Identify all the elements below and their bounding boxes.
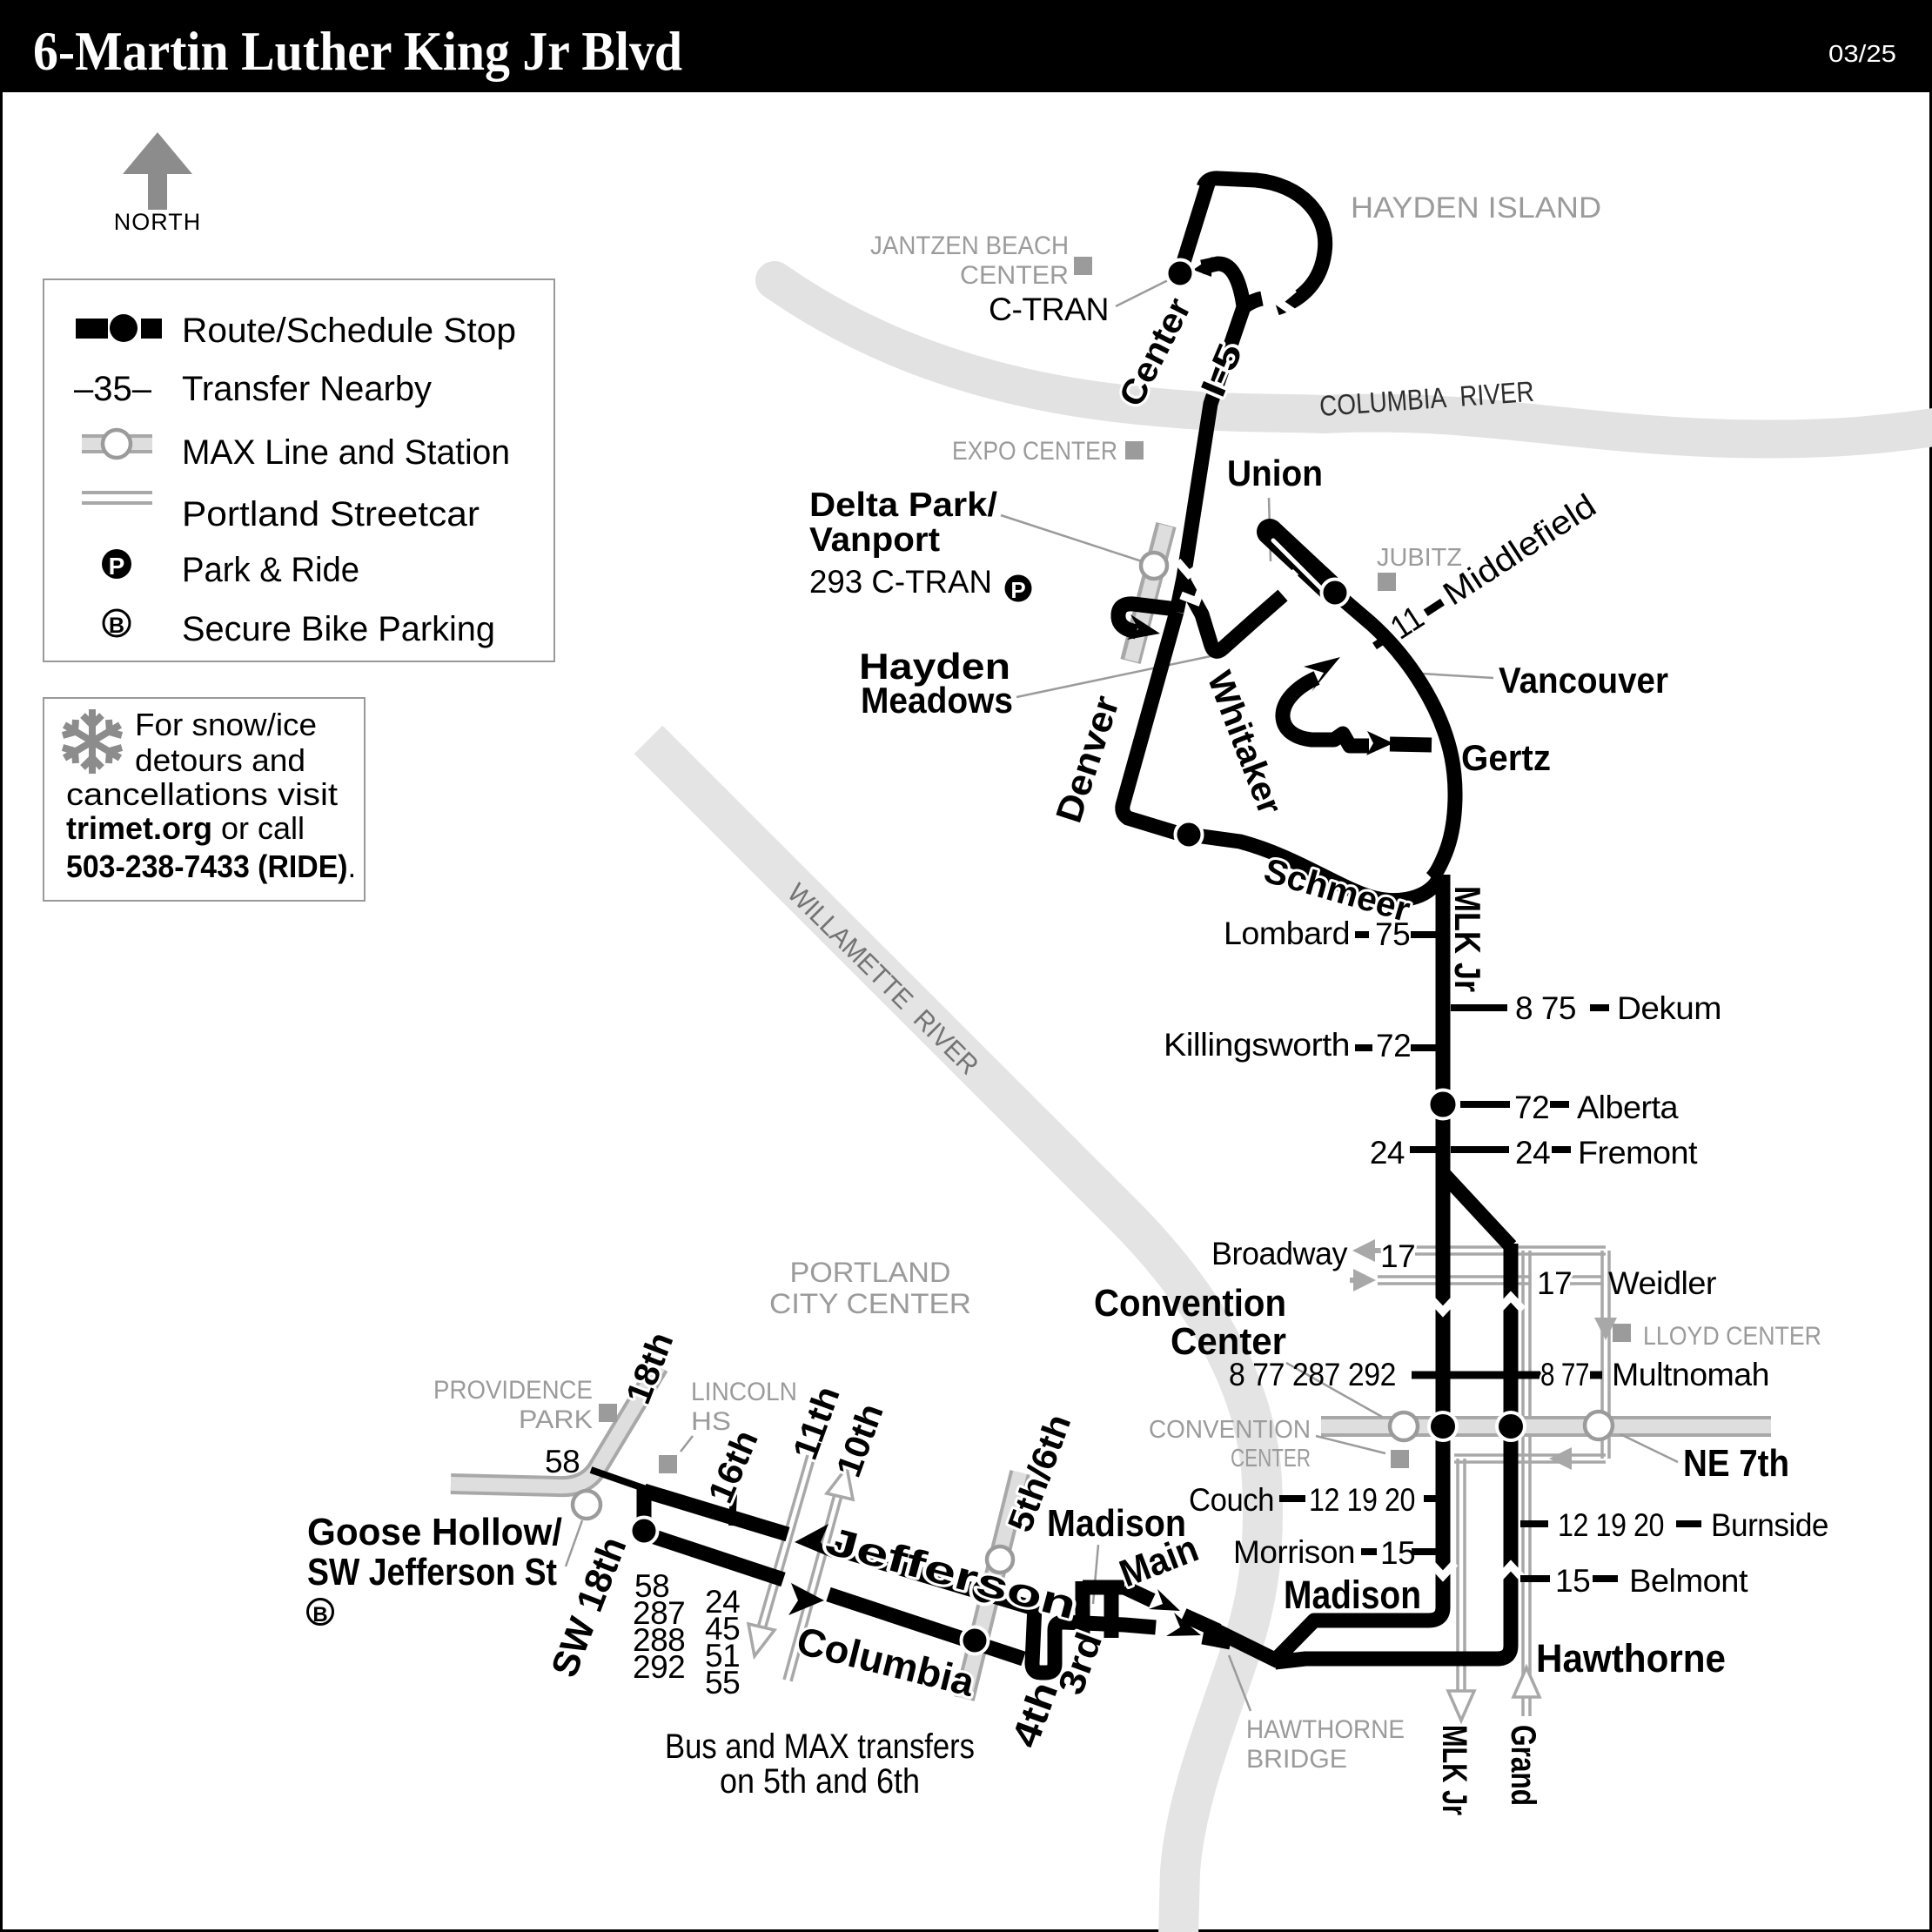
- svg-text:CONVENTION: CONVENTION: [1149, 1416, 1311, 1444]
- svg-text:Grand: Grand: [1504, 1725, 1542, 1806]
- svg-text:For snow/ice: For snow/ice: [135, 707, 317, 742]
- svg-text:B: B: [109, 614, 124, 638]
- svg-text:detours and: detours and: [135, 742, 305, 778]
- svg-text:292: 292: [633, 1649, 685, 1685]
- svg-text:CENTER: CENTER: [960, 261, 1069, 290]
- svg-text:SW Jefferson St: SW Jefferson St: [307, 1551, 557, 1593]
- svg-text:72: 72: [1514, 1090, 1549, 1125]
- svg-text:8 75: 8 75: [1515, 990, 1576, 1026]
- svg-text:Couch: Couch: [1189, 1482, 1274, 1518]
- svg-text:Dekum: Dekum: [1617, 990, 1721, 1026]
- svg-text:72: 72: [1376, 1028, 1411, 1063]
- svg-text:B: B: [312, 1603, 327, 1627]
- svg-text:Meadows: Meadows: [861, 680, 1013, 721]
- svg-text:12 19 20: 12 19 20: [1309, 1482, 1415, 1518]
- svg-text:Route/Schedule Stop: Route/Schedule Stop: [182, 312, 516, 350]
- svg-text:Vanport: Vanport: [809, 521, 940, 559]
- svg-text:Goose Hollow/: Goose Hollow/: [307, 1511, 562, 1553]
- svg-text:HAWTHORNE: HAWTHORNE: [1246, 1715, 1405, 1744]
- svg-text:Broadway: Broadway: [1211, 1236, 1348, 1271]
- svg-text:Belmont: Belmont: [1629, 1563, 1748, 1599]
- svg-text:Alberta: Alberta: [1577, 1090, 1679, 1125]
- svg-text:on 5th and 6th: on 5th and 6th: [720, 1762, 920, 1801]
- svg-text:Gertz: Gertz: [1461, 737, 1551, 778]
- svg-text:Bus and MAX transfers: Bus and MAX transfers: [665, 1727, 975, 1766]
- svg-text:Union: Union: [1227, 453, 1323, 493]
- svg-text:Killingsworth: Killingsworth: [1164, 1027, 1350, 1063]
- svg-text:Madison: Madison: [1284, 1573, 1421, 1617]
- svg-text:58: 58: [545, 1444, 580, 1479]
- svg-text:8 77: 8 77: [1540, 1357, 1589, 1392]
- svg-text:Convention: Convention: [1094, 1282, 1286, 1325]
- svg-text:15: 15: [1555, 1563, 1590, 1599]
- svg-text:Hawthorne: Hawthorne: [1536, 1636, 1726, 1680]
- svg-text:PROVIDENCE: PROVIDENCE: [433, 1376, 593, 1405]
- svg-text:Delta Park/: Delta Park/: [809, 486, 997, 524]
- svg-text:trimet.org or call: trimet.org or call: [66, 810, 305, 846]
- svg-text:12 19 20: 12 19 20: [1558, 1507, 1664, 1543]
- svg-text:JANTZEN BEACH: JANTZEN BEACH: [870, 231, 1069, 260]
- svg-text:24: 24: [1515, 1135, 1550, 1171]
- svg-text:CENTER: CENTER: [1231, 1445, 1311, 1472]
- svg-text:8 77 287 292: 8 77 287 292: [1229, 1357, 1396, 1392]
- svg-text:Lombard: Lombard: [1224, 916, 1350, 951]
- svg-text:17: 17: [1380, 1238, 1415, 1274]
- svg-text:LINCOLN: LINCOLN: [691, 1378, 797, 1406]
- svg-text:PORTLAND: PORTLAND: [790, 1257, 951, 1288]
- svg-text:Vancouver: Vancouver: [1499, 660, 1668, 701]
- svg-text:15: 15: [1380, 1535, 1415, 1571]
- svg-text:MAX Line and Station: MAX Line and Station: [182, 433, 510, 472]
- svg-text:Portland Streetcar: Portland Streetcar: [182, 495, 480, 533]
- svg-text:Burnside: Burnside: [1711, 1507, 1828, 1543]
- svg-text:Park & Ride: Park & Ride: [182, 551, 359, 589]
- svg-text:–35–: –35–: [74, 370, 152, 408]
- svg-text:6-Martin Luther King Jr Blvd: 6-Martin Luther King Jr Blvd: [33, 20, 682, 82]
- svg-text:HAYDEN ISLAND: HAYDEN ISLAND: [1351, 191, 1601, 225]
- svg-text:MLK Jr: MLK Jr: [1447, 886, 1488, 992]
- svg-text:EXPO CENTER: EXPO CENTER: [952, 437, 1117, 466]
- svg-text:C-TRAN: C-TRAN: [989, 292, 1109, 327]
- svg-text:CITY CENTER: CITY CENTER: [769, 1288, 971, 1319]
- svg-text:NORTH: NORTH: [114, 209, 202, 235]
- svg-text:55: 55: [705, 1665, 740, 1701]
- svg-text:293 C-TRAN: 293 C-TRAN: [809, 564, 992, 600]
- svg-text:503-238-7433 (RIDE).: 503-238-7433 (RIDE).: [66, 849, 356, 884]
- svg-text:75: 75: [1375, 916, 1410, 952]
- svg-text:Secure Bike Parking: Secure Bike Parking: [182, 610, 495, 648]
- svg-text:Fremont: Fremont: [1578, 1135, 1698, 1171]
- svg-text:P: P: [109, 553, 125, 580]
- svg-text:Weidler: Weidler: [1608, 1265, 1716, 1301]
- svg-text:24: 24: [1370, 1135, 1405, 1171]
- svg-text:Transfer Nearby: Transfer Nearby: [182, 370, 432, 408]
- svg-text:MLK Jr: MLK Jr: [1435, 1725, 1473, 1815]
- svg-text:03/25: 03/25: [1828, 40, 1896, 67]
- svg-text:P: P: [1010, 577, 1025, 603]
- svg-text:cancellations visit: cancellations visit: [66, 776, 338, 812]
- svg-text:17: 17: [1537, 1265, 1572, 1301]
- svg-text:NE 7th: NE 7th: [1683, 1442, 1789, 1485]
- svg-text:LLOYD CENTER: LLOYD CENTER: [1643, 1322, 1821, 1351]
- svg-text:BRIDGE: BRIDGE: [1246, 1745, 1347, 1774]
- svg-text:PARK: PARK: [519, 1405, 593, 1434]
- svg-text:HS: HS: [691, 1407, 731, 1436]
- svg-text:JUBITZ: JUBITZ: [1377, 544, 1462, 572]
- svg-text:Morrison: Morrison: [1233, 1534, 1355, 1570]
- svg-text:Multnomah: Multnomah: [1612, 1357, 1769, 1392]
